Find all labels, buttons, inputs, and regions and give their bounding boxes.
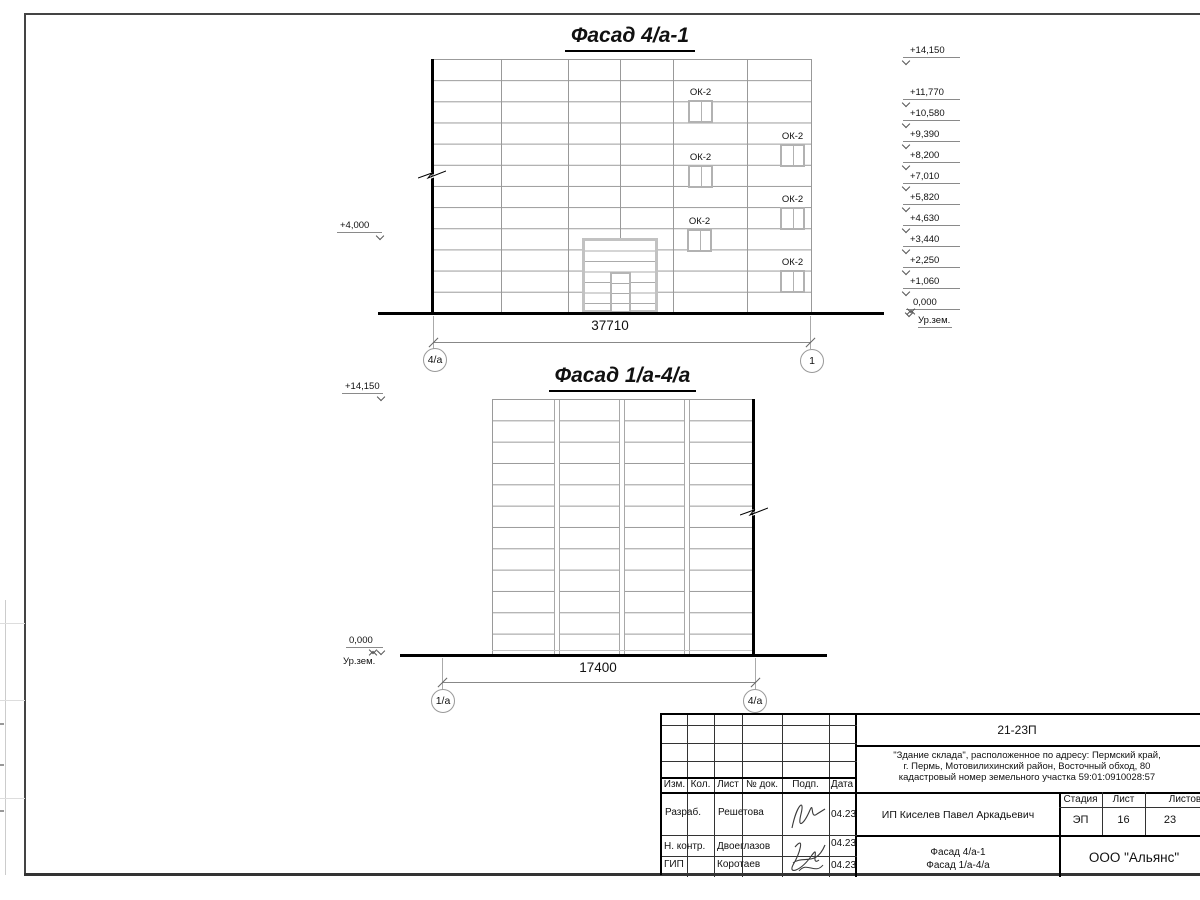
panel-joint (554, 400, 560, 654)
elevation-mark: 0,000 (346, 634, 383, 648)
elevation-mark: +8,200 (903, 149, 960, 163)
wicket-door (610, 272, 631, 313)
stamp-date: 04.23 (831, 860, 856, 871)
stamp-header-cell: Кол. (687, 779, 714, 790)
sheet-title-line: Фасад 1/а-4/а (859, 860, 1057, 871)
client-name: ИП Киселев Павел Аркадьевич (859, 809, 1057, 821)
window-mullion (701, 102, 702, 121)
stamp-line (857, 835, 1200, 837)
stamp-line (829, 715, 830, 877)
window-mullion (793, 272, 794, 291)
window-mullion (793, 209, 794, 228)
column-line (568, 59, 569, 313)
extension-line (433, 316, 434, 349)
elevation-mark: +7,010 (903, 170, 960, 184)
window (688, 165, 713, 188)
margin-mark (0, 764, 4, 766)
margin-line (0, 623, 25, 624)
stamp-line (855, 715, 857, 877)
facade1-left-edge (431, 59, 434, 314)
margin-line (0, 700, 25, 701)
elevation-arrow-icon (376, 232, 384, 240)
stage-header: Стадия (1059, 794, 1102, 805)
window (780, 270, 805, 293)
margin-mark (0, 810, 4, 812)
signature (784, 794, 828, 834)
dimension-value: 17400 (538, 660, 658, 675)
elevation-arrow-icon (902, 288, 910, 296)
margin-mark (0, 723, 4, 725)
window-label: ОК-2 (778, 194, 807, 205)
elevation-mark: +4,000 (337, 219, 382, 233)
elevation-arrow-icon (902, 204, 910, 212)
elevation-arrow-icon (902, 246, 910, 254)
sheets-value: 23 (1145, 814, 1195, 826)
stamp-line (857, 745, 1200, 747)
axis-bubble: 4/а (423, 348, 447, 372)
elevation-arrow-icon (902, 183, 910, 191)
elevation-arrow-icon (902, 99, 910, 107)
sheet-value: 16 (1102, 814, 1145, 826)
frame-left-border (24, 13, 26, 875)
stamp-line (687, 715, 688, 877)
axis-bubble: 4/а (743, 689, 767, 713)
stamp-line (662, 743, 857, 744)
break-mark-icon (418, 166, 446, 182)
frame-top-border (25, 13, 1200, 15)
margin-line (5, 600, 6, 875)
stamp-line (662, 725, 857, 726)
elevation-mark: +4,630 (903, 212, 960, 226)
window-label: ОК-2 (778, 257, 807, 268)
ground-level-label: Ур.зем. (343, 656, 375, 667)
stamp-header-cell: № док. (742, 779, 782, 790)
window (687, 229, 712, 252)
sheet-title-line: Фасад 4/а-1 (859, 847, 1057, 858)
axis-label: 1/а (436, 695, 451, 707)
elevation-arrow-icon (377, 393, 385, 401)
project-description-line: г. Пермь, Мотовилихинский район, Восточн… (862, 762, 1192, 773)
stamp-line (714, 715, 715, 877)
base-line (492, 650, 754, 651)
elevation-mark: +14,150 (342, 380, 383, 394)
company-name: ООО "Альянс" (1059, 850, 1200, 865)
elevation-mark: +1,060 (903, 275, 960, 289)
window-label: ОК-2 (686, 87, 715, 98)
elevation-mark: +9,390 (903, 128, 960, 142)
ground-level-label: Ур.зем. (918, 315, 952, 328)
axis-bubble: 1 (800, 349, 824, 373)
window (780, 207, 805, 230)
stamp-date: 04.23 (831, 809, 856, 820)
elevation-arrow-icon (902, 225, 910, 233)
title-block: Изм. Кол. Лист № док. Подп. Дата Разраб.… (660, 713, 1200, 875)
window-label: ОК-2 (686, 152, 715, 163)
stamp-name: Коротаев (717, 859, 760, 870)
window (780, 144, 805, 167)
stamp-line (662, 761, 857, 762)
stamp-name: Двоеглазов (717, 841, 770, 852)
window-label: ОК-2 (778, 131, 807, 142)
elevation-arrow-icon (902, 141, 910, 149)
column-line (747, 59, 748, 313)
window-label: ОК-2 (685, 216, 714, 227)
dimension-value: 37710 (550, 318, 670, 333)
panel-joint (684, 400, 690, 654)
project-description-line: кадастровый номер земельного участка 59:… (862, 773, 1192, 784)
column-line (620, 59, 621, 238)
stage-value: ЭП (1059, 814, 1102, 826)
elevation-mark: +5,820 (903, 191, 960, 205)
dimension-line (433, 342, 811, 343)
margin-line (0, 798, 25, 799)
elevation-mark: +3,440 (903, 233, 960, 247)
window-mullion (793, 146, 794, 165)
axis-label: 1 (809, 355, 815, 367)
stamp-header-cell: Лист (714, 779, 742, 790)
axis-bubble: 1/а (431, 689, 455, 713)
break-mark-icon (740, 503, 768, 519)
elevation-arrow-icon (902, 120, 910, 128)
elevation-arrow-icon (377, 647, 385, 655)
project-description-line: "Здание склада", расположенное по адресу… (862, 751, 1192, 762)
sheet-header: Лист (1102, 794, 1145, 805)
stamp-header-cell: Подп. (782, 779, 829, 790)
elevation-arrow-icon (902, 162, 910, 170)
stamp-line (742, 715, 743, 877)
stamp-role: ГИП (664, 859, 684, 870)
project-code: 21-23П (857, 723, 1177, 737)
elevation-mark: +11,770 (903, 86, 960, 100)
window (688, 100, 713, 123)
stamp-header-cell: Дата (829, 779, 855, 790)
facade2-title: Фасад 1/а-4/а (510, 364, 735, 392)
window-mullion (701, 167, 702, 186)
panel-joint (619, 400, 625, 654)
elevation-mark: +14,150 (903, 44, 960, 58)
window-mullion (700, 231, 701, 250)
facade1-right-edge (811, 59, 812, 313)
column-line (501, 59, 502, 313)
stamp-name: Решетова (718, 807, 764, 818)
axis-label: 4/а (428, 354, 443, 366)
extension-line (810, 316, 811, 349)
stamp-header-cell: Изм. (662, 779, 687, 790)
sheets-header: Листов (1145, 794, 1200, 805)
stamp-role: Н. контр. (664, 841, 705, 852)
dimension-line (442, 682, 756, 683)
facade2-right-edge (752, 399, 755, 655)
stamp-line (1059, 807, 1200, 808)
extension-line (755, 658, 756, 690)
axis-label: 4/а (748, 695, 763, 707)
facade1-title: Фасад 4/а-1 (525, 24, 735, 52)
ground-line (400, 654, 827, 657)
stamp-role: Разраб. (665, 807, 701, 818)
elevation-arrow-icon (902, 267, 910, 275)
stamp-date: 04.23 (831, 838, 856, 849)
ground-line (378, 312, 884, 315)
elevation-arrow-icon (902, 57, 910, 65)
column-line (673, 59, 674, 313)
signature (783, 835, 829, 877)
elevation-mark: +10,580 (903, 107, 960, 121)
elevation-mark: +2,250 (903, 254, 960, 268)
extension-line (442, 658, 443, 690)
drawing-sheet: Фасад 4/а-1 ОК-2 ОК-2 ОК-2 ОК-2 ОК-2 ОК-… (0, 0, 1200, 900)
